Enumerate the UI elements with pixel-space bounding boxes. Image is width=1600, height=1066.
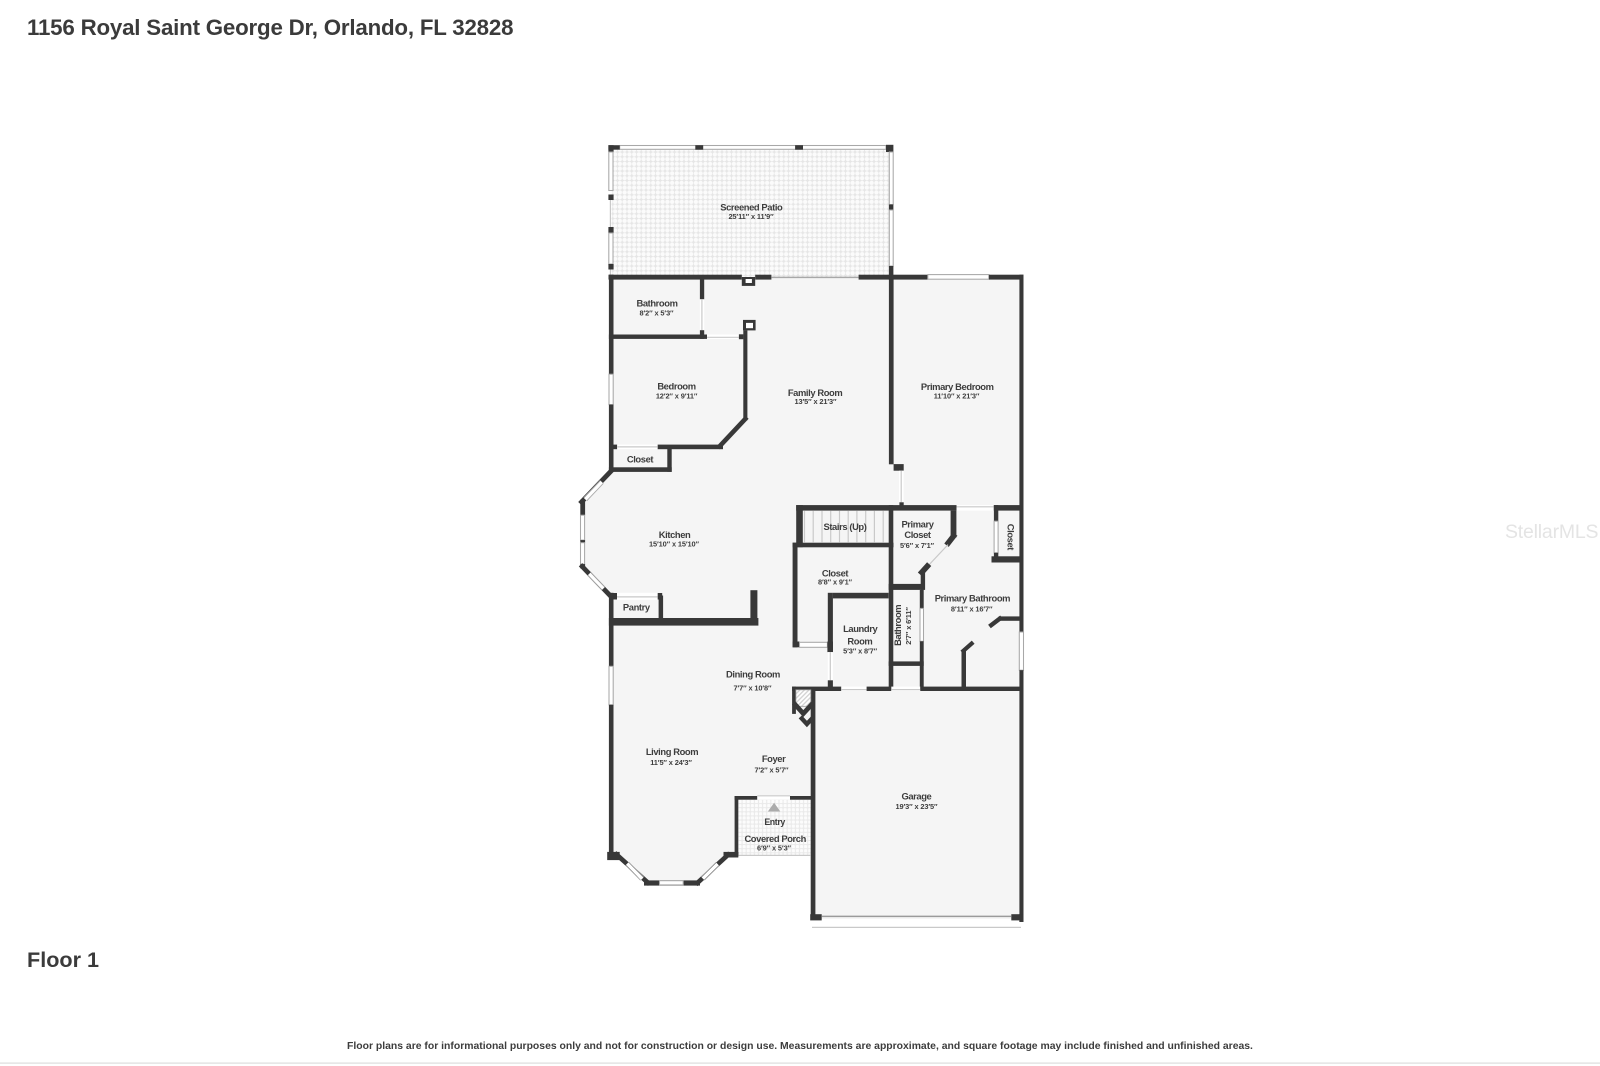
svg-text:Pantry: Pantry [623,602,651,613]
svg-text:Primary Bathroom: Primary Bathroom [935,593,1010,604]
svg-text:2′7″ x 6′11″: 2′7″ x 6′11″ [904,607,913,645]
svg-text:Foyer: Foyer [762,753,786,764]
svg-text:Family Room: Family Room [788,387,843,398]
svg-text:Kitchen: Kitchen [659,529,691,540]
svg-text:19′3″ x 23′5″: 19′3″ x 23′5″ [896,802,939,811]
svg-text:StellarMLS: StellarMLS [1505,521,1599,543]
svg-text:5′3″ x 8′7″: 5′3″ x 8′7″ [843,647,878,656]
svg-text:Dining Room: Dining Room [726,669,780,680]
svg-text:Garage: Garage [901,791,931,802]
svg-text:Laundry: Laundry [843,623,878,634]
svg-text:Bathroom: Bathroom [636,298,677,309]
svg-text:Floor 1: Floor 1 [27,947,99,972]
svg-text:5′6″ x 7′1″: 5′6″ x 7′1″ [900,541,935,550]
svg-text:1156 Royal Saint George Dr, Or: 1156 Royal Saint George Dr, Orlando, FL … [27,15,513,40]
svg-text:7′2″ x 5′7″: 7′2″ x 5′7″ [755,765,790,774]
svg-text:Bedroom: Bedroom [657,380,695,391]
svg-text:13′5″ x 21′3″: 13′5″ x 21′3″ [795,397,838,406]
svg-text:Room: Room [847,636,872,647]
svg-text:7′7″ x 10′8″: 7′7″ x 10′8″ [734,684,773,693]
svg-text:Living Room: Living Room [646,746,698,757]
svg-text:8′2″ x 5′3″: 8′2″ x 5′3″ [640,309,675,318]
svg-text:Covered Porch: Covered Porch [744,833,806,844]
svg-text:11′5″ x 24′3″: 11′5″ x 24′3″ [650,758,692,767]
svg-text:Bathroom: Bathroom [892,605,903,646]
svg-text:Closet: Closet [904,529,931,540]
svg-text:12′2″ x 9′11″: 12′2″ x 9′11″ [656,392,698,401]
svg-text:11′10″ x 21′3″: 11′10″ x 21′3″ [934,392,980,401]
svg-text:Floor plans are for informatio: Floor plans are for informational purpos… [347,1041,1253,1052]
svg-text:Primary: Primary [901,519,934,530]
svg-text:8′11″ x 16′7″: 8′11″ x 16′7″ [951,605,993,614]
svg-text:Closet: Closet [1005,524,1016,551]
svg-text:25′11″ x 11′9″: 25′11″ x 11′9″ [728,212,774,221]
svg-text:6′9″ x 5′3″: 6′9″ x 5′3″ [757,844,792,853]
svg-text:Entry: Entry [764,817,785,827]
svg-text:8′8″ x 9′1″: 8′8″ x 9′1″ [818,578,853,587]
svg-text:Stairs (Up): Stairs (Up) [823,521,866,532]
svg-text:Closet: Closet [627,454,654,465]
svg-text:15′10″ x 15′10″: 15′10″ x 15′10″ [649,539,700,548]
